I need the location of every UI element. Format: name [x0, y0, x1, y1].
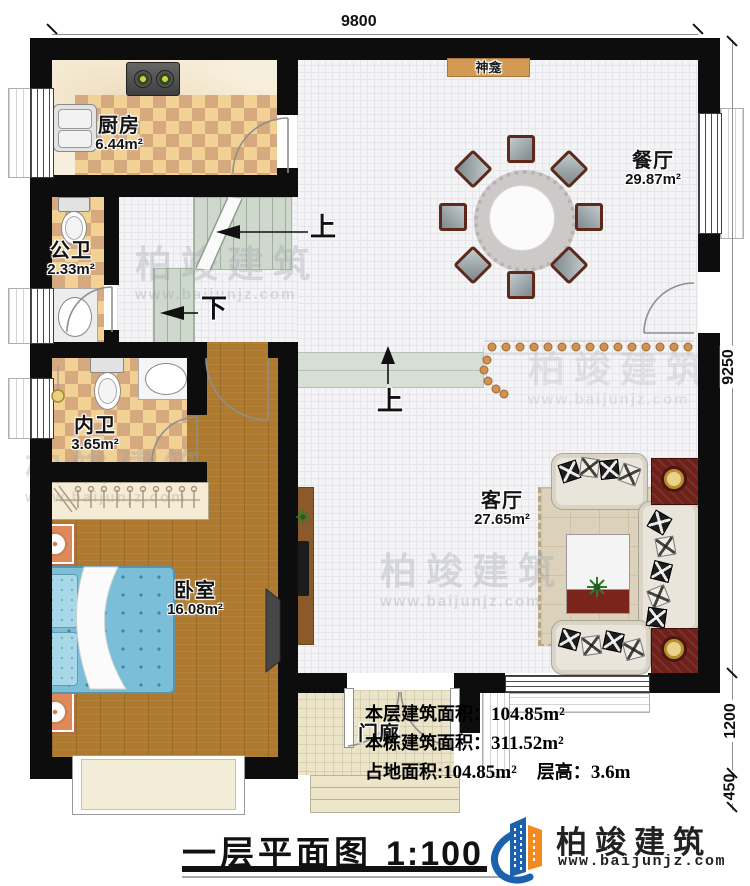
- cushion: [581, 635, 602, 656]
- stairs-lower-flight: [153, 268, 195, 347]
- info-value: 104.85m²: [491, 704, 565, 725]
- wall: [104, 197, 119, 285]
- company-logo-icon: [488, 810, 552, 884]
- stairs-upper-flight: [193, 197, 292, 270]
- washbasin-icon: [52, 288, 98, 344]
- room-label-living: 客厅 27.65m²: [474, 491, 530, 528]
- title-underline-thick: [182, 866, 487, 872]
- dimension-line-top: [52, 34, 698, 35]
- room-area: 29.87m²: [625, 172, 681, 188]
- dining-table-top: [489, 185, 555, 251]
- dining-chair: [575, 203, 603, 231]
- info-label: 占地面积:: [365, 762, 443, 782]
- room-name: 餐厅: [625, 151, 681, 172]
- lamp-icon: [664, 639, 684, 659]
- dimension-tick: [46, 23, 57, 34]
- window: [30, 88, 54, 178]
- info-value: 3.6m: [591, 762, 631, 783]
- dimension-right-value: 9250: [720, 346, 738, 388]
- shrine-shelf: 神龛: [447, 58, 530, 77]
- room-name: 内卫: [71, 416, 119, 437]
- dining-chair: [439, 203, 467, 231]
- washbasin-icon: [138, 356, 192, 400]
- window: [30, 288, 54, 344]
- dimension-right-mid-value: 1200: [722, 700, 740, 742]
- side-table: [651, 458, 700, 505]
- window-sill: [8, 288, 32, 344]
- bay-window: [72, 755, 245, 815]
- floor-plan-canvas: 柏竣建筑 www.baijunjz.com 柏竣建筑 www.baijunjz.…: [0, 0, 750, 886]
- basin-bowl: [145, 363, 187, 395]
- dimension-line-right: [732, 40, 733, 810]
- dining-chair: [507, 271, 535, 299]
- room-name: 厨房: [95, 116, 143, 137]
- toilet-tank: [90, 357, 124, 373]
- window-sill: [8, 378, 32, 439]
- toilet-bowl-inner: [98, 378, 117, 404]
- side-table: [651, 628, 700, 675]
- room-label-public-bath: 公卫 2.33m²: [47, 241, 95, 278]
- room-area: 6.44m²: [95, 137, 143, 153]
- burner-icon: [134, 70, 152, 88]
- toilet-bowl-inner: [65, 216, 83, 240]
- company-website: www.baijunjz.com: [558, 853, 726, 870]
- info-label: 层高：: [537, 762, 591, 782]
- room-area: 2.33m²: [47, 262, 95, 278]
- window-sill: [8, 88, 32, 178]
- room-name: 客厅: [474, 491, 530, 512]
- stairs-up-label: 上: [310, 214, 336, 240]
- cushion: [654, 535, 676, 557]
- toilet-icon: [58, 197, 90, 245]
- room-area: 27.65m²: [474, 512, 530, 528]
- wall: [648, 673, 720, 693]
- porch-step: [310, 799, 460, 813]
- info-building-area: 本栋建筑面积：311.52m²: [365, 729, 564, 755]
- sink-basin: [58, 109, 92, 129]
- bay-window-sill: [81, 759, 236, 810]
- window: [505, 675, 650, 693]
- sink-basin: [58, 130, 92, 148]
- dining-chair: [507, 135, 535, 163]
- wall: [187, 358, 207, 415]
- cushion: [646, 607, 667, 628]
- wall: [698, 333, 720, 693]
- wall: [277, 58, 298, 115]
- porch-door-leaf: [344, 688, 354, 748]
- info-value: 104.85m²: [443, 762, 517, 783]
- title-underline-thin: [182, 876, 500, 878]
- wall: [268, 342, 298, 358]
- room-label-dining: 餐厅 29.87m²: [625, 151, 681, 188]
- info-value: 311.52m²: [491, 733, 564, 754]
- toilet-icon: [90, 357, 124, 411]
- stairs-down-label: 下: [201, 295, 227, 321]
- stove-icon: [126, 62, 180, 96]
- room-name: 卧室: [167, 581, 223, 602]
- info-label: 本栋建筑面积：: [365, 733, 491, 753]
- tv-icon: [297, 541, 309, 596]
- room-area: 3.65m²: [71, 437, 119, 453]
- info-floor-area: 本层建筑面积：104.85m²: [365, 700, 565, 726]
- kitchen-sink-icon: [53, 104, 97, 152]
- dimension-tick: [692, 23, 703, 34]
- wardrobe: [48, 482, 209, 520]
- toilet-tank: [58, 197, 90, 212]
- cushion: [579, 457, 600, 478]
- window: [30, 378, 54, 439]
- wall: [30, 175, 297, 197]
- entry-step-ramp: [290, 352, 484, 388]
- window: [698, 113, 722, 234]
- room-label-bedroom: 卧室 16.08m²: [167, 581, 223, 618]
- room-label-kitchen: 厨房 6.44m²: [95, 116, 143, 153]
- wall: [30, 38, 720, 60]
- cushion: [602, 630, 625, 653]
- room-label-inner-bath: 内卫 3.65m²: [71, 416, 119, 453]
- wall: [30, 342, 207, 358]
- entry-step-up-label: 上: [377, 388, 403, 414]
- lamp-icon: [664, 469, 684, 489]
- coffee-table: [566, 534, 630, 614]
- room-name: 公卫: [47, 241, 95, 262]
- room-area: 16.08m²: [167, 602, 223, 618]
- dimension-top-value: 9800: [338, 13, 380, 31]
- wall: [30, 462, 207, 482]
- basin-bowl: [58, 297, 92, 337]
- cushion: [599, 459, 620, 480]
- burner-icon: [156, 70, 174, 88]
- info-label: 本层建筑面积：: [365, 704, 491, 724]
- info-footprint-height: 占地面积:104.85m² 层高：3.6m: [365, 758, 630, 784]
